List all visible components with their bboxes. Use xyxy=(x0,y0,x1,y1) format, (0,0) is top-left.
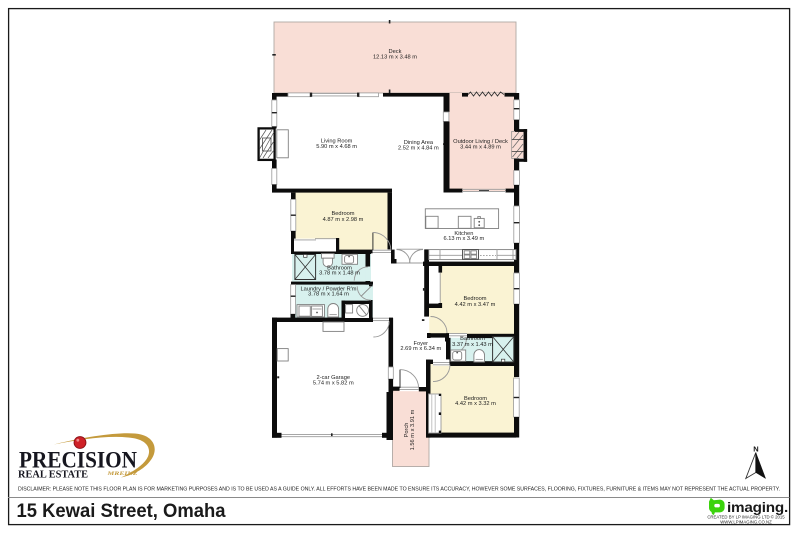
svg-text:4.87 m x 2.98 m: 4.87 m x 2.98 m xyxy=(323,217,364,223)
svg-text:1.56 m x 3.91 m: 1.56 m x 3.91 m xyxy=(410,409,416,450)
svg-text:N: N xyxy=(753,445,758,454)
svg-text:4.42 m x 3.47 m: 4.42 m x 3.47 m xyxy=(455,302,496,308)
svg-text:5.74 m x 5.82 m: 5.74 m x 5.82 m xyxy=(313,380,354,386)
svg-text:2.52 m x 4.84 m: 2.52 m x 4.84 m xyxy=(398,145,439,151)
svg-text:imaging.: imaging. xyxy=(727,499,788,515)
svg-text:WWW.LPIMAGING.CO.NZ: WWW.LPIMAGING.CO.NZ xyxy=(720,519,772,524)
svg-text:2.69 m x 6.34 m: 2.69 m x 6.34 m xyxy=(400,346,441,352)
svg-text:3.78 m x 1.48 m: 3.78 m x 1.48 m xyxy=(319,271,360,277)
svg-text:MREINZ: MREINZ xyxy=(106,471,138,477)
svg-text:12.13 m x 3.48 m: 12.13 m x 3.48 m xyxy=(373,55,417,61)
svg-text:3.78 m x 1.64 m: 3.78 m x 1.64 m xyxy=(308,292,349,298)
svg-text:DISCLAIMER: PLEASE NOTE THIS F: DISCLAIMER: PLEASE NOTE THIS FLOOR PLAN … xyxy=(18,487,780,493)
svg-text:15 Kewai Street, Omaha: 15 Kewai Street, Omaha xyxy=(17,500,226,522)
svg-text:3.44 m x 4.89 m: 3.44 m x 4.89 m xyxy=(460,145,501,151)
svg-text:6.13 m x 3.49 m: 6.13 m x 3.49 m xyxy=(444,236,485,242)
svg-text:3.37 m x 1.43 m: 3.37 m x 1.43 m xyxy=(452,342,493,348)
svg-text:REAL ESTATE: REAL ESTATE xyxy=(18,470,88,481)
svg-text:5.90 m x 4.68 m: 5.90 m x 4.68 m xyxy=(316,144,357,150)
svg-text:4.42 m x 3.32 m: 4.42 m x 3.32 m xyxy=(455,401,496,407)
